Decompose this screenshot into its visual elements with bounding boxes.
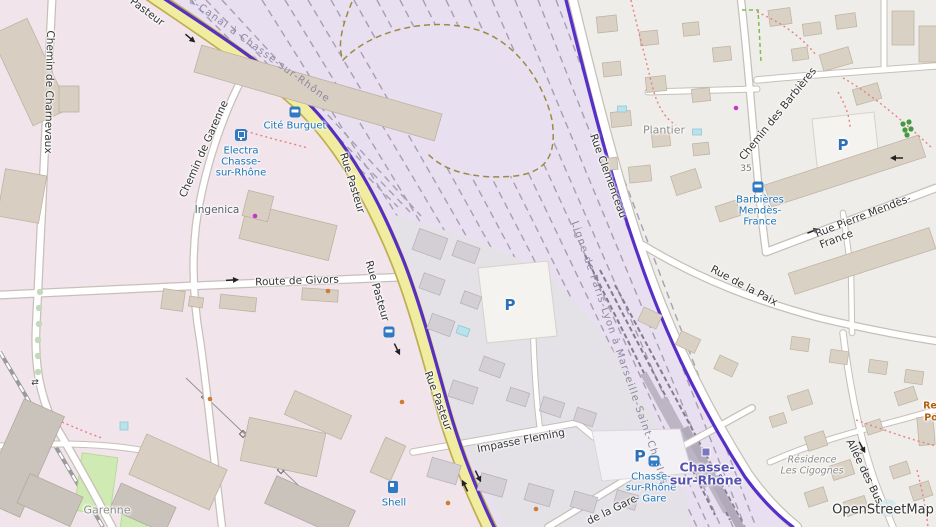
house-number-35: 35 bbox=[740, 164, 751, 174]
bus-stop-icon-cite-burguet bbox=[290, 107, 301, 118]
parking-icon-northeast: P bbox=[838, 136, 849, 154]
parking-icon-gare: P bbox=[634, 447, 646, 466]
attribution-link[interactable]: OpenStreetMap bbox=[832, 503, 934, 518]
bus-stop-icon-barbieres bbox=[753, 182, 764, 193]
place-label-les-cigognes: Les Cigognes bbox=[780, 466, 843, 477]
place-label-residence: Résidence bbox=[788, 455, 837, 466]
transit-label-barbieres-1: Barbières bbox=[736, 195, 784, 206]
transit-label-barbieres-3: France bbox=[743, 217, 776, 228]
bus-stop-icon-rue-pasteur bbox=[384, 327, 395, 338]
transit-label-shell: Shell bbox=[382, 498, 406, 509]
street-label-chemin-de-charnevaux: Chemin de Charnevaux bbox=[42, 30, 56, 153]
transit-label-gare-parking-2: sur-Rhône bbox=[626, 483, 677, 494]
transit-label-electra-2: Chasse- bbox=[221, 157, 261, 168]
train-station-icon bbox=[649, 456, 660, 467]
railway-station-icon bbox=[702, 448, 711, 457]
shop-label-clipped-line2: Po bbox=[924, 413, 936, 424]
transit-label-gare-parking-1: Chasse- bbox=[631, 472, 671, 483]
map-base-layers bbox=[0, 0, 936, 527]
transit-label-gare-parking-3: - Gare bbox=[636, 494, 667, 505]
transit-label-electra-3: sur-Rhône bbox=[216, 168, 267, 179]
transit-label-cite-burguet: Cité Burguet bbox=[264, 121, 327, 132]
place-label-plantier: Plantier bbox=[643, 124, 685, 137]
station-label-chasse-2: sur-Rhône bbox=[670, 473, 742, 488]
fuel-station-icon bbox=[388, 481, 398, 493]
place-label-garenne: Garenne bbox=[83, 504, 130, 517]
ev-charging-icon bbox=[235, 129, 247, 141]
level-crossing-icon: ⇄ bbox=[31, 378, 39, 388]
place-label-ingenica: Ingenica bbox=[195, 204, 240, 216]
shop-label-clipped-line1: Re bbox=[923, 401, 936, 412]
transit-label-barbieres-2: Mendès- bbox=[739, 206, 781, 217]
map-canvas[interactable]: Chemin de Charnevaux Chemin de Garenne P… bbox=[0, 0, 936, 527]
parking-icon-center: P bbox=[505, 296, 516, 314]
transit-label-electra-1: Electra bbox=[224, 146, 259, 157]
